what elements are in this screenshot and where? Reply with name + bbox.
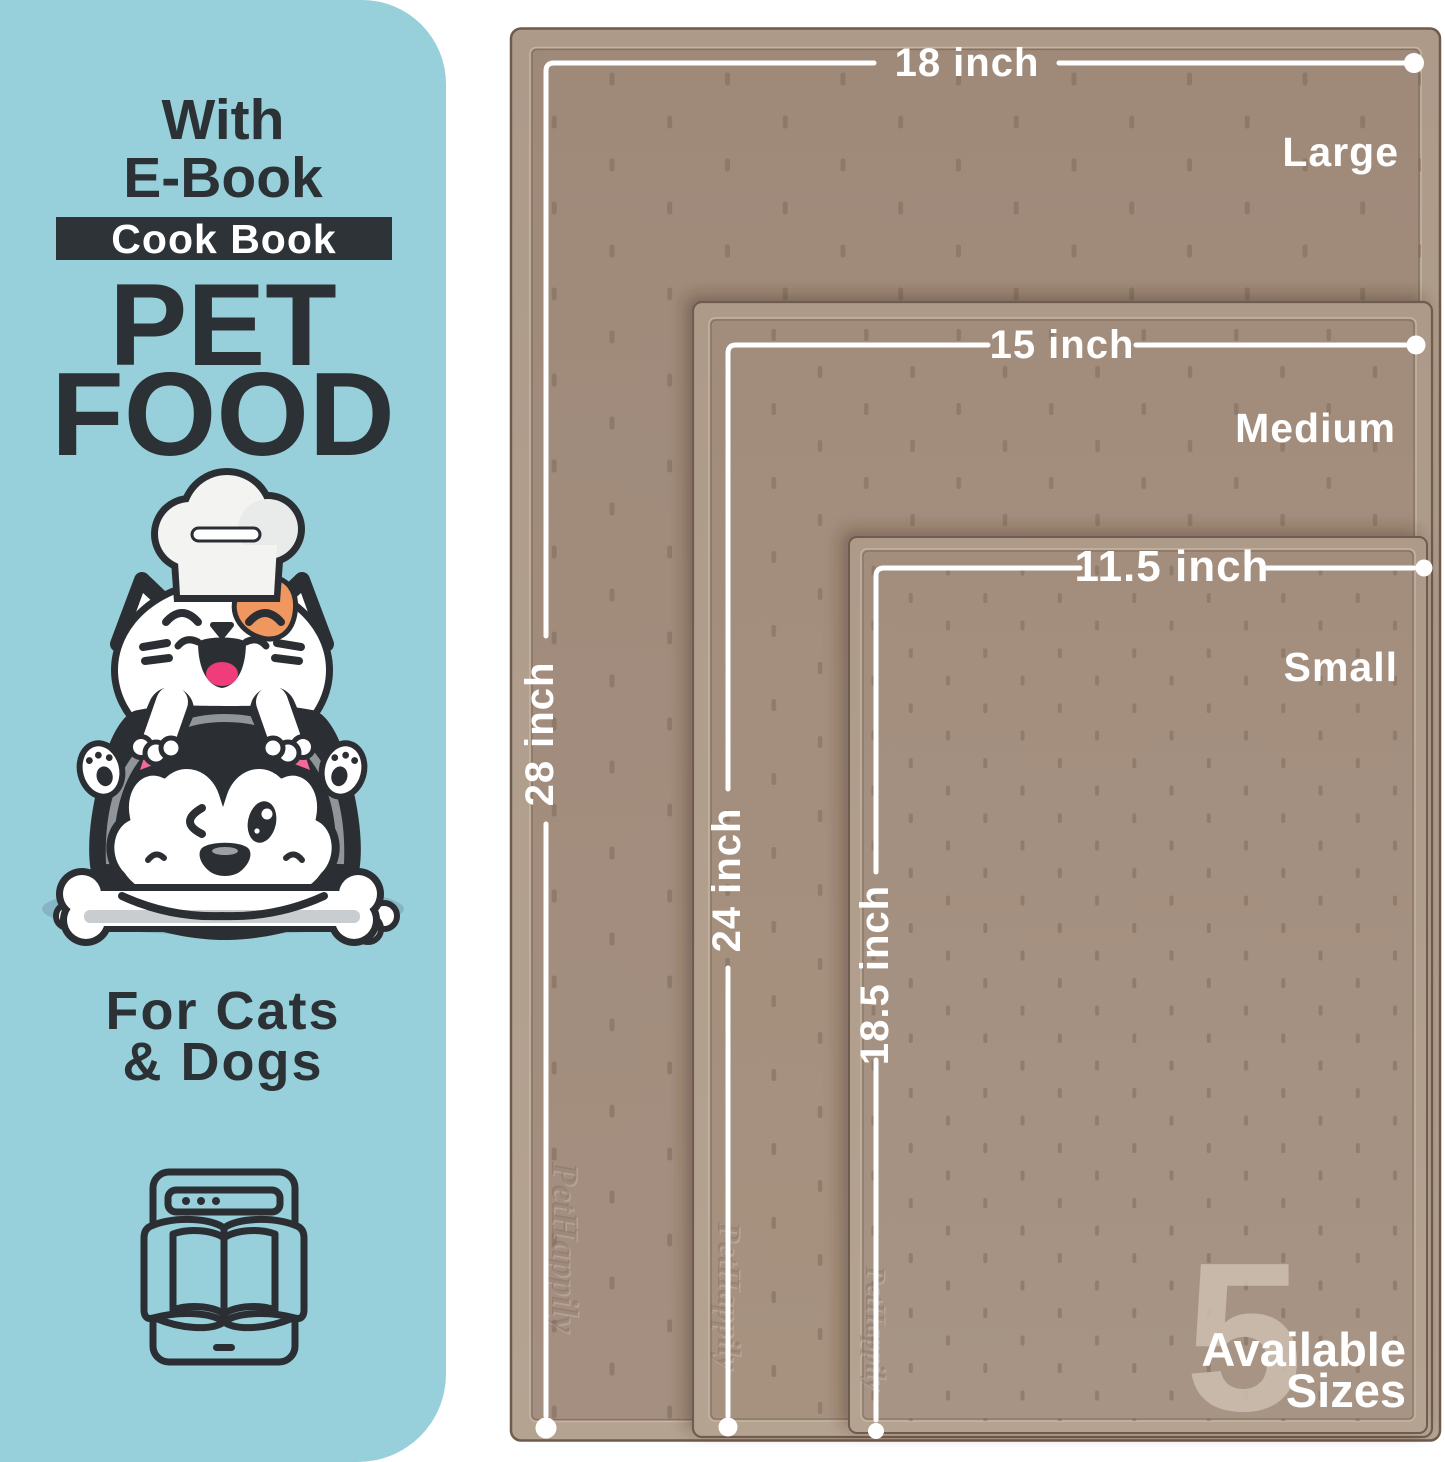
- svg-text:11.5 inch: 11.5 inch: [1075, 542, 1270, 591]
- svg-text:28 inch: 28 inch: [518, 662, 562, 807]
- svg-text:24 inch: 24 inch: [705, 808, 749, 953]
- svg-text:Medium: Medium: [1235, 405, 1396, 451]
- svg-text:18 inch: 18 inch: [895, 41, 1040, 85]
- svg-text:18.5 inch: 18.5 inch: [853, 885, 897, 1065]
- svg-text:PetHappily: PetHappily: [543, 1161, 584, 1333]
- svg-text:15 inch: 15 inch: [990, 323, 1135, 367]
- svg-text:Sizes: Sizes: [1286, 1364, 1406, 1417]
- svg-text:Large: Large: [1282, 129, 1399, 175]
- svg-text:Small: Small: [1284, 644, 1398, 690]
